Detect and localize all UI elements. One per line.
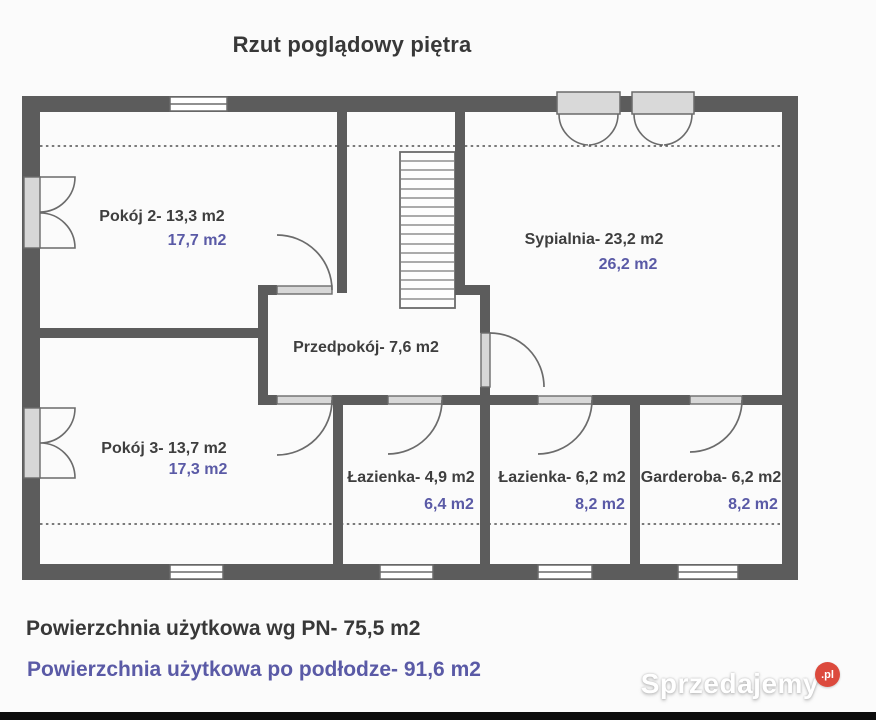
door-lazienka1 — [388, 396, 442, 454]
watermark-brand-text: Sprzedajemy — [641, 670, 819, 698]
window-garderoba-bottom — [678, 565, 738, 579]
room-label-przedpokoj: Przedpokój- 7,6 m2 — [293, 339, 439, 357]
door-sypialnia — [481, 333, 544, 387]
door-pokoj2 — [277, 235, 332, 294]
wall-przedpokoj-left — [258, 285, 268, 405]
room-area-lazienka1: 6,4 m2 — [424, 496, 474, 514]
room-area-sypialnia: 26,2 m2 — [599, 256, 658, 274]
floor-plan-drawing — [0, 0, 876, 720]
door-lazienka2 — [538, 396, 592, 454]
page-title: Rzut poglądowy piętra — [233, 32, 472, 58]
wall-outer-left — [22, 96, 40, 580]
room-label-pokoj2: Pokój 2- 13,3 m2 — [99, 208, 224, 226]
wall-pokoj3-lazienka1 — [333, 405, 343, 564]
wall-outer-right — [782, 96, 798, 580]
bottom-black-bar — [0, 712, 876, 720]
wall-bottomrow-4 — [592, 395, 690, 405]
wall-stairhall-left — [337, 112, 347, 293]
floorplan-page: Rzut poglądowy piętra Pokój 2- 13,3 m2 1… — [0, 0, 876, 720]
room-label-lazienka1: Łazienka- 4,9 m2 — [347, 469, 474, 487]
room-area-garderoba: 8,2 m2 — [728, 496, 778, 514]
window-lazienka1-bottom — [380, 565, 433, 579]
wall-bottomrow-2 — [332, 395, 388, 405]
staircase — [400, 152, 455, 308]
wall-stairhall-right — [455, 112, 465, 293]
wall-stub-left — [258, 285, 277, 295]
wall-lazienka1-lazienka2 — [480, 405, 490, 564]
wall-sypialnia-upper — [480, 285, 490, 333]
door-pokoj3 — [277, 396, 332, 455]
window-pokoj2-top — [170, 97, 227, 111]
french-door-pokoj3 — [24, 408, 75, 478]
summary-usable-area-pn: Powierzchnia użytkowa wg PN- 75,5 m2 — [26, 617, 420, 641]
wall-bottomrow-1 — [258, 395, 277, 405]
french-door-pokoj2 — [24, 177, 75, 248]
window-lazienka2-bottom — [538, 565, 592, 579]
wall-lazienka2-garderoba — [630, 405, 640, 564]
room-label-sypialnia: Sypialnia- 23,2 m2 — [525, 231, 664, 249]
wall-pokoj2-pokoj3 — [40, 328, 268, 338]
watermark-pl-badge: .pl — [815, 662, 840, 687]
room-area-pokoj3: 17,3 m2 — [169, 461, 228, 479]
wall-bottomrow-5 — [742, 395, 782, 405]
watermark: Sprzedajemy .pl — [641, 670, 840, 704]
room-label-lazienka2: Łazienka- 6,2 m2 — [498, 469, 625, 487]
room-label-garderoba: Garderoba- 6,2 m2 — [641, 469, 782, 487]
wall-bottomrow-3 — [442, 395, 538, 405]
room-label-pokoj3: Pokój 3- 13,7 m2 — [101, 440, 226, 458]
roof-window-1 — [557, 92, 620, 145]
room-area-pokoj2: 17,7 m2 — [168, 232, 227, 250]
roof-window-2 — [632, 92, 694, 145]
door-garderoba — [690, 396, 742, 452]
summary-floor-area: Powierzchnia użytkowa po podłodze- 91,6 … — [27, 658, 481, 682]
room-area-lazienka2: 8,2 m2 — [575, 496, 625, 514]
window-pokoj3-bottom — [170, 565, 223, 579]
